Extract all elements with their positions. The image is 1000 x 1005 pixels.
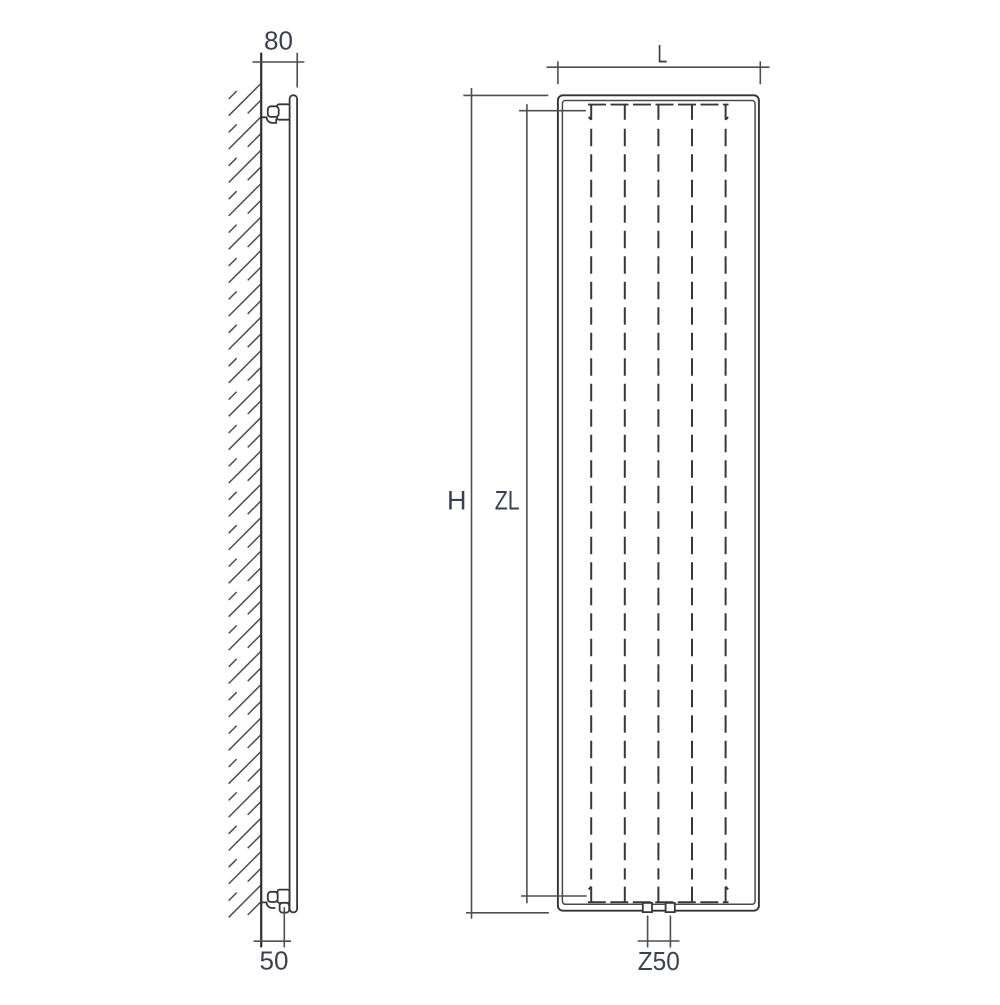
svg-text:80: 80 (264, 26, 293, 56)
svg-text:50: 50 (260, 946, 289, 976)
svg-text:L: L (657, 41, 667, 69)
svg-text:ZL: ZL (495, 486, 520, 516)
svg-text:H: H (447, 486, 467, 516)
svg-text:Z50: Z50 (638, 946, 680, 976)
